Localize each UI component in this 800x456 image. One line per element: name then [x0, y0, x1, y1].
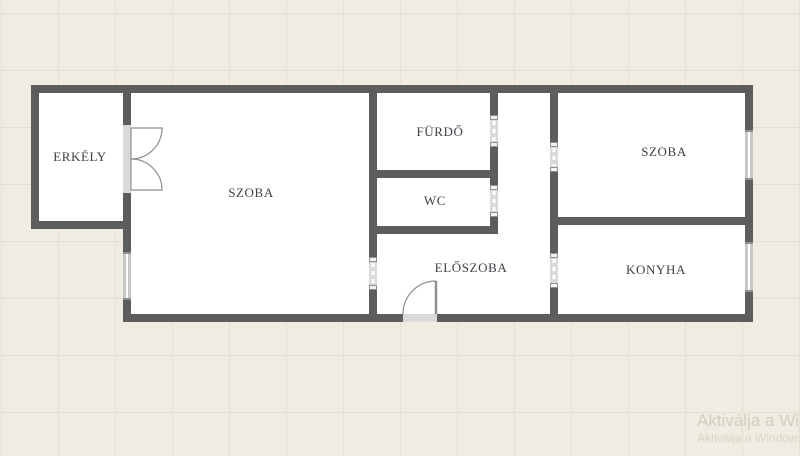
wall-wc-eloszoba-divider: [369, 226, 498, 234]
door-szoba-left-icon: [369, 257, 377, 290]
room-label-wc: WC: [424, 193, 446, 209]
room-label-szoba-right: SZOBA: [641, 144, 687, 160]
door-wc-icon: [490, 185, 498, 217]
door-cap: [490, 212, 498, 217]
window-glass: [748, 244, 750, 290]
window-glass: [126, 254, 128, 298]
double-door-frame: [123, 125, 131, 193]
door-cap: [550, 283, 558, 288]
door-cap: [550, 253, 558, 258]
door-dash: [493, 191, 496, 211]
door-furdo-icon: [490, 115, 498, 147]
door-cap: [369, 257, 377, 262]
room-label-eloszoba: ELŐSZOBA: [435, 260, 508, 276]
door-szoba-right-icon: [550, 142, 558, 172]
door-cap: [550, 167, 558, 172]
door-cap: [550, 142, 558, 147]
door-dash: [553, 259, 556, 282]
door-cap: [490, 142, 498, 147]
room-label-szoba-left: SZOBA: [228, 185, 274, 201]
window-glass: [748, 132, 750, 178]
window-szoba-left-icon: [123, 252, 131, 300]
door-cap: [490, 115, 498, 120]
window-konyha-icon: [745, 242, 753, 292]
window-szoba-right-icon: [745, 130, 753, 180]
door-dash: [493, 121, 496, 141]
door-cap: [369, 285, 377, 290]
room-label-erkely: ERKÉLY: [53, 149, 107, 165]
door-dash: [372, 263, 375, 284]
wall-furdo-wc-divider: [377, 170, 490, 178]
windows-activation-watermark-line1: Aktiválja a Win: [697, 411, 800, 431]
floorplan-canvas: ERKÉLY SZOBA FÜRDŐ WC ELŐSZOBA SZOBA KON…: [0, 0, 800, 456]
door-dash: [553, 148, 556, 166]
wall-exterior-top: [31, 85, 753, 93]
windows-activation-watermark-line2: Aktiválja a Windows: [697, 431, 800, 445]
entrance-door-threshold: [403, 314, 437, 322]
door-cap: [490, 185, 498, 190]
room-label-konyha: KONYHA: [626, 262, 686, 278]
wall-erkely-left: [31, 85, 39, 229]
wall-erkely-bottom: [31, 221, 131, 229]
door-konyha-icon: [550, 253, 558, 288]
wall-szoba-konyha-divider: [558, 217, 745, 225]
room-label-furdo: FÜRDŐ: [416, 124, 463, 140]
wall-exterior-bottom: [123, 314, 753, 322]
